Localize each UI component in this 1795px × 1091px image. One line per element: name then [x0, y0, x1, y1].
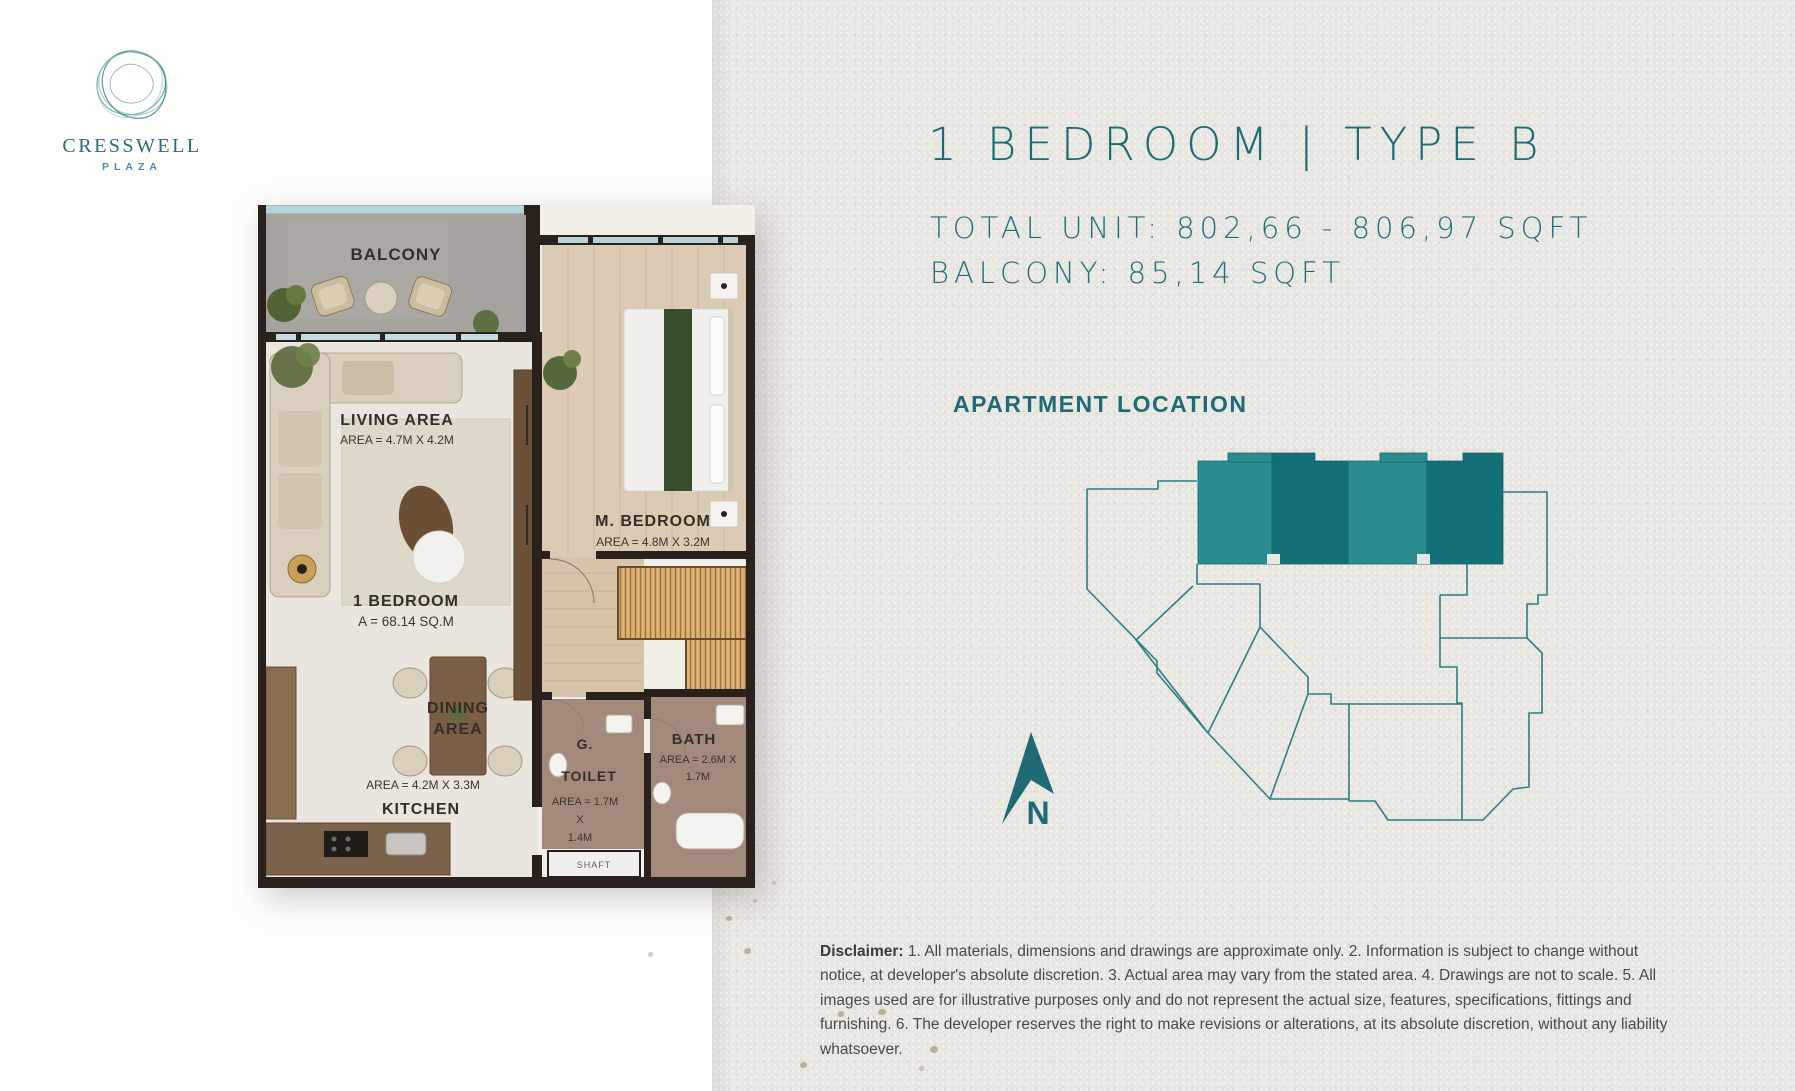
logo-subtitle: PLAZA — [52, 161, 212, 173]
compass-north-label: N — [1026, 795, 1049, 831]
master-bedroom: M. BEDROOM AREA = 4.8M X 3.2M — [534, 235, 755, 557]
toilet-label-1: G. — [577, 736, 594, 752]
unit-specs: TOTAL UNIT: 802,66 - 806,97 SQFT BALCONY… — [930, 206, 1592, 296]
north-compass-icon: N — [992, 724, 1064, 836]
unit-band-notch — [1267, 554, 1280, 564]
living-area-label: LIVING AREA — [340, 412, 454, 429]
disclaimer-body: 1. All materials, dimensions and drawing… — [820, 943, 1667, 1058]
paper-speck — [744, 948, 751, 954]
dining-label-1: DINING — [427, 700, 489, 717]
floor-plan: BALCONY LIVING AR — [258, 205, 755, 888]
unit-band-notch — [1417, 554, 1430, 564]
highlighted-units — [1198, 453, 1503, 564]
unit-name-label: 1 BEDROOM — [353, 593, 459, 610]
total-unit-area: TOTAL UNIT: 802,66 - 806,97 SQFT — [930, 206, 1592, 251]
shaft-label: SHAFT — [577, 860, 612, 870]
paper-speck — [726, 916, 732, 921]
cresswell-logo-mark-icon — [72, 46, 192, 128]
bedroom-area-dim: AREA = 4.8M X 3.2M — [596, 535, 710, 549]
toilet-label-2: TOILET — [561, 768, 617, 784]
toilet-area-dim-3: 1.4M — [568, 832, 592, 844]
logo-name: CRESSWELL — [52, 135, 212, 158]
balcony-area: BALCONY: 85,14 SQFT — [930, 251, 1592, 296]
balcony-label: BALCONY — [350, 245, 441, 264]
dining-area-dim: AREA = 4.2M X 3.3M — [366, 778, 480, 792]
unit-type-title: 1 BEDROOM | TYPE B — [928, 118, 1547, 171]
unit-area-label: A = 68.14 SQ.M — [358, 614, 454, 629]
balcony-room: BALCONY — [260, 205, 528, 336]
shaft: SHAFT — [548, 851, 640, 877]
brochure-page: { "colors": { "teal_text": "#1d6b75", "u… — [0, 0, 1795, 1091]
guest-toilet: G. TOILET AREA = 1.7M X 1.4M — [542, 699, 644, 849]
paper-speck — [648, 952, 653, 957]
bath-area-dim-2: 1.7M — [686, 771, 710, 783]
living-room: LIVING AREA AREA = 4.7M X 4.2M 1 BEDROOM… — [258, 332, 542, 879]
apartment-location-heading: APARTMENT LOCATION — [953, 391, 1247, 418]
disclaimer-label: Disclaimer: — [820, 943, 904, 960]
cresswell-logo: CRESSWELL PLAZA — [52, 46, 212, 173]
kitchen-label: KITCHEN — [382, 801, 460, 818]
bath-area-dim-1: AREA = 2.6M X — [660, 754, 737, 766]
paper-speck — [800, 1062, 807, 1068]
paper-speck — [772, 881, 776, 885]
paper-speck — [753, 899, 757, 903]
toilet-area-dim-1: AREA = 1.7M — [552, 796, 618, 808]
living-area-dim: AREA = 4.7M X 4.2M — [340, 433, 454, 447]
dining-label-2: AREA — [433, 721, 482, 738]
paper-speck — [919, 1066, 924, 1071]
toilet-area-dim-2: X — [576, 814, 584, 826]
apartment-location-diagram — [1060, 440, 1620, 860]
bedroom-label: M. BEDROOM — [595, 513, 711, 530]
floor-plan-drawing: BALCONY LIVING AR — [258, 205, 755, 888]
disclaimer-text: Disclaimer: 1. All materials, dimensions… — [820, 940, 1686, 1063]
